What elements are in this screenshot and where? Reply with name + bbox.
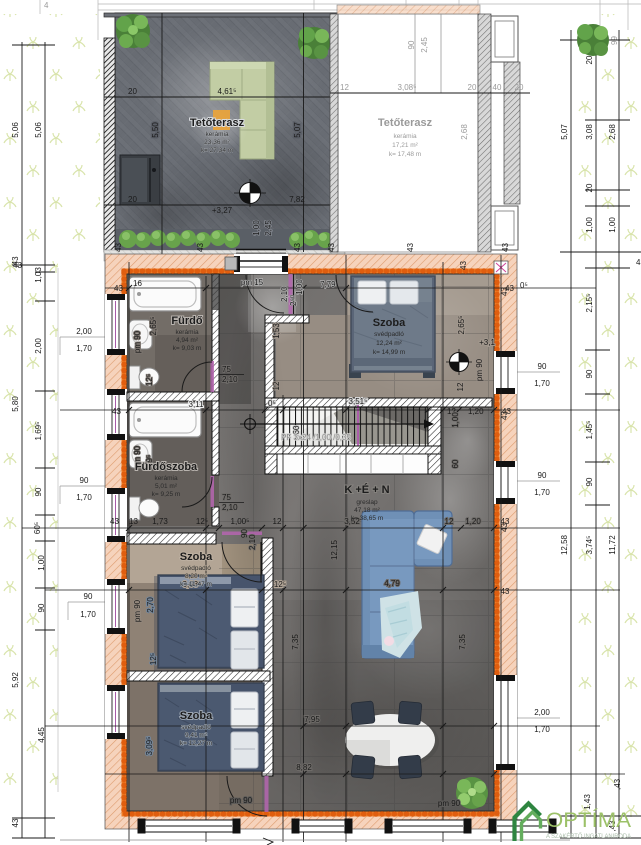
svg-text:+3,1: +3,1 bbox=[479, 338, 495, 347]
svg-text:20: 20 bbox=[585, 183, 594, 192]
svg-text:90: 90 bbox=[585, 369, 594, 378]
svg-text:11,72: 11,72 bbox=[608, 535, 617, 555]
svg-text:greslap: greslap bbox=[356, 499, 378, 506]
svg-text:kerámia: kerámia bbox=[154, 475, 178, 482]
svg-text:3,08⁵: 3,08⁵ bbox=[398, 83, 417, 92]
svg-text:1,20: 1,20 bbox=[465, 517, 481, 526]
svg-text:90: 90 bbox=[538, 362, 547, 371]
svg-text:4,45: 4,45 bbox=[37, 727, 46, 743]
svg-text:43: 43 bbox=[112, 407, 121, 416]
svg-text:8,20 m²: 8,20 m² bbox=[185, 573, 208, 580]
svg-text:90: 90 bbox=[34, 487, 43, 496]
svg-text:2,65⁵: 2,65⁵ bbox=[457, 316, 466, 335]
svg-text:A SZAKÉRTŐ INGATLANIRODA: A SZAKÉRTŐ INGATLANIRODA bbox=[546, 831, 632, 840]
svg-text:2⁹⁰: 2⁹⁰ bbox=[289, 295, 298, 306]
svg-text:1,69⁵: 1,69⁵ bbox=[34, 422, 43, 441]
svg-text:k= 38,65 m: k= 38,65 m bbox=[351, 515, 383, 522]
svg-text:k= 9,25 m: k= 9,25 m bbox=[152, 491, 181, 498]
svg-text:7,95: 7,95 bbox=[304, 715, 320, 724]
svg-text:k= 14,99 m: k= 14,99 m bbox=[373, 349, 405, 356]
svg-text:kerámia: kerámia bbox=[205, 131, 229, 138]
svg-text:3,74⁵: 3,74⁵ bbox=[585, 536, 594, 555]
svg-text:12,24 m²: 12,24 m² bbox=[376, 340, 402, 347]
svg-text:43: 43 bbox=[500, 523, 509, 532]
svg-text:9,41 m²: 9,41 m² bbox=[185, 732, 208, 739]
svg-text:43: 43 bbox=[110, 517, 119, 526]
svg-text:90: 90 bbox=[585, 477, 594, 486]
svg-text:pm 90: pm 90 bbox=[133, 330, 142, 353]
svg-text:5,92: 5,92 bbox=[11, 672, 20, 688]
svg-text:43: 43 bbox=[11, 818, 20, 827]
svg-text:43: 43 bbox=[327, 243, 336, 252]
svg-text:7,35: 7,35 bbox=[458, 634, 467, 650]
svg-text:2,10: 2,10 bbox=[222, 503, 238, 512]
svg-text:75: 75 bbox=[222, 493, 231, 502]
svg-text:5,07: 5,07 bbox=[293, 122, 302, 138]
svg-text:43: 43 bbox=[501, 587, 510, 596]
svg-text:1,00: 1,00 bbox=[295, 279, 304, 295]
svg-text:3,11: 3,11 bbox=[189, 400, 205, 409]
svg-text:1,00: 1,00 bbox=[608, 217, 617, 233]
svg-text:pm 15: pm 15 bbox=[241, 278, 264, 287]
svg-text:pm 90: pm 90 bbox=[475, 358, 484, 381]
svg-text:3,08: 3,08 bbox=[585, 124, 594, 140]
svg-text:43: 43 bbox=[13, 261, 22, 270]
svg-text:12: 12 bbox=[272, 381, 281, 390]
svg-text:12⁵: 12⁵ bbox=[145, 374, 154, 386]
svg-text:60: 60 bbox=[451, 459, 460, 468]
svg-text:43: 43 bbox=[406, 243, 415, 252]
svg-text:1,70: 1,70 bbox=[534, 379, 550, 388]
svg-text:75: 75 bbox=[222, 365, 231, 374]
svg-text:pm 90: pm 90 bbox=[133, 599, 142, 622]
svg-text:12⁵: 12⁵ bbox=[196, 517, 208, 526]
svg-text:,43: ,43 bbox=[613, 778, 622, 790]
svg-text:47,18 m²: 47,18 m² bbox=[354, 507, 380, 514]
svg-text:8,82: 8,82 bbox=[296, 763, 312, 772]
svg-text:20: 20 bbox=[585, 55, 594, 64]
svg-text:7,35: 7,35 bbox=[291, 634, 300, 650]
svg-text:90: 90 bbox=[80, 476, 89, 485]
svg-text:1,70: 1,70 bbox=[76, 344, 92, 353]
svg-text:+3,27: +3,27 bbox=[212, 206, 233, 215]
svg-text:1,70: 1,70 bbox=[76, 493, 92, 502]
svg-text:2,45: 2,45 bbox=[264, 220, 273, 236]
svg-text:1,00: 1,00 bbox=[252, 220, 261, 236]
svg-text:4,61⁵: 4,61⁵ bbox=[218, 87, 237, 96]
svg-text:12: 12 bbox=[456, 382, 465, 391]
svg-text:Szoba: Szoba bbox=[180, 551, 213, 563]
svg-text:43: 43 bbox=[501, 243, 510, 252]
svg-text:k= 9,03 m: k= 9,03 m bbox=[173, 345, 202, 352]
svg-text:1,53: 1,53 bbox=[272, 323, 281, 339]
svg-text:7,79: 7,79 bbox=[320, 280, 336, 289]
svg-text:pm 90: pm 90 bbox=[230, 796, 253, 805]
svg-text:4,94 m²: 4,94 m² bbox=[176, 337, 199, 344]
svg-text:23,36 m²: 23,36 m² bbox=[204, 139, 230, 146]
svg-text:5,06: 5,06 bbox=[34, 122, 43, 138]
svg-text:13: 13 bbox=[129, 517, 138, 526]
svg-text:2,00: 2,00 bbox=[534, 708, 550, 717]
svg-text:Fürdőszoba: Fürdőszoba bbox=[135, 461, 198, 473]
svg-text:kerámia: kerámia bbox=[175, 329, 199, 336]
svg-text:5,80: 5,80 bbox=[11, 396, 20, 412]
svg-text:Tetőterasz: Tetőterasz bbox=[190, 117, 245, 129]
svg-text:2,65⁵: 2,65⁵ bbox=[149, 317, 158, 336]
svg-text:90: 90 bbox=[37, 603, 46, 612]
svg-text:43: 43 bbox=[500, 411, 509, 420]
svg-text:2,10: 2,10 bbox=[248, 534, 257, 550]
svg-text:12,58: 12,58 bbox=[560, 534, 569, 555]
svg-text:kerámia: kerámia bbox=[393, 133, 417, 140]
svg-text:12⁵: 12⁵ bbox=[274, 580, 286, 589]
svg-text:1,20: 1,20 bbox=[468, 407, 484, 416]
svg-text:1,03: 1,03 bbox=[34, 267, 43, 283]
svg-text:2,68: 2,68 bbox=[608, 124, 617, 140]
svg-text:17,21 m²: 17,21 m² bbox=[392, 142, 418, 149]
svg-text:Fürdő: Fürdő bbox=[171, 315, 202, 327]
svg-text:5,07: 5,07 bbox=[560, 124, 569, 140]
svg-text:12: 12 bbox=[340, 83, 349, 92]
svg-text:svédpadló: svédpadló bbox=[181, 724, 211, 731]
svg-text:k= 11,47 m: k= 11,47 m bbox=[180, 581, 212, 588]
svg-text:90: 90 bbox=[407, 40, 416, 49]
svg-text:4,79: 4,79 bbox=[384, 579, 400, 588]
svg-text:16: 16 bbox=[133, 279, 142, 288]
svg-text:90: 90 bbox=[538, 471, 547, 480]
svg-text:2,10: 2,10 bbox=[280, 286, 289, 302]
svg-text:12⁵: 12⁵ bbox=[149, 653, 158, 665]
svg-text:12: 12 bbox=[445, 517, 454, 526]
svg-text:K +É + N: K +É + N bbox=[344, 483, 389, 496]
svg-text:pm 90: pm 90 bbox=[438, 799, 461, 808]
svg-text:3,09⁵: 3,09⁵ bbox=[145, 737, 154, 756]
svg-text:20: 20 bbox=[515, 83, 524, 92]
svg-text:2,10: 2,10 bbox=[222, 375, 238, 384]
svg-text:Tetőterasz: Tetőterasz bbox=[378, 117, 433, 129]
svg-text:43: 43 bbox=[196, 243, 205, 252]
svg-text:2,15⁵: 2,15⁵ bbox=[585, 294, 594, 313]
svg-text:0⁵: 0⁵ bbox=[520, 281, 528, 290]
svg-text:1,00: 1,00 bbox=[37, 555, 46, 571]
svg-text:4: 4 bbox=[44, 1, 49, 10]
svg-text:43: 43 bbox=[114, 243, 123, 252]
svg-text:0⁵: 0⁵ bbox=[268, 399, 276, 408]
svg-text:43: 43 bbox=[459, 261, 468, 270]
svg-text:2,00: 2,00 bbox=[34, 338, 43, 354]
svg-text:43: 43 bbox=[114, 284, 123, 293]
svg-text:43: 43 bbox=[636, 258, 641, 267]
svg-text:OPTÍMA: OPTÍMA bbox=[546, 807, 632, 832]
svg-text:1,00: 1,00 bbox=[451, 412, 460, 428]
svg-text:1,70: 1,70 bbox=[80, 610, 96, 619]
svg-text:20: 20 bbox=[128, 87, 137, 96]
svg-text:5,50: 5,50 bbox=[151, 122, 160, 138]
svg-text:2,70: 2,70 bbox=[146, 597, 155, 613]
svg-text:2,45: 2,45 bbox=[420, 37, 429, 53]
svg-text:20: 20 bbox=[128, 195, 137, 204]
svg-text:40: 40 bbox=[493, 83, 502, 92]
svg-text:90: 90 bbox=[84, 592, 93, 601]
svg-text:43: 43 bbox=[293, 243, 302, 252]
svg-text:Szoba: Szoba bbox=[180, 710, 213, 722]
svg-text:svédpadló: svédpadló bbox=[374, 331, 404, 338]
svg-text:2,00: 2,00 bbox=[76, 327, 92, 336]
svg-text:3,51⁵: 3,51⁵ bbox=[349, 397, 368, 406]
svg-text:1,70: 1,70 bbox=[534, 488, 550, 497]
svg-text:1,45⁵: 1,45⁵ bbox=[585, 421, 594, 440]
svg-text:1,00: 1,00 bbox=[585, 217, 594, 233]
svg-text:1,73: 1,73 bbox=[152, 517, 168, 526]
svg-text:20: 20 bbox=[468, 83, 477, 92]
svg-text:k= 17,48 m: k= 17,48 m bbox=[389, 151, 421, 158]
svg-text:43: 43 bbox=[500, 287, 509, 296]
svg-text:k= 12,27 m: k= 12,27 m bbox=[180, 740, 212, 747]
svg-text:1,00⁵: 1,00⁵ bbox=[231, 517, 250, 526]
svg-text:PF 3x24 /1,00 /0,35: PF 3x24 /1,00 /0,35 bbox=[281, 433, 351, 442]
svg-text:12,15: 12,15 bbox=[330, 539, 339, 560]
svg-text:7,82: 7,82 bbox=[289, 195, 305, 204]
svg-text:2,68: 2,68 bbox=[460, 124, 469, 140]
svg-text:k= 27,34 m: k= 27,34 m bbox=[201, 147, 233, 154]
svg-text:5,06: 5,06 bbox=[11, 122, 20, 138]
svg-text:5,01 m²: 5,01 m² bbox=[155, 483, 178, 490]
svg-text:Szoba: Szoba bbox=[373, 317, 406, 329]
svg-text:svédpadló: svédpadló bbox=[181, 565, 211, 572]
svg-text:12: 12 bbox=[273, 517, 282, 526]
